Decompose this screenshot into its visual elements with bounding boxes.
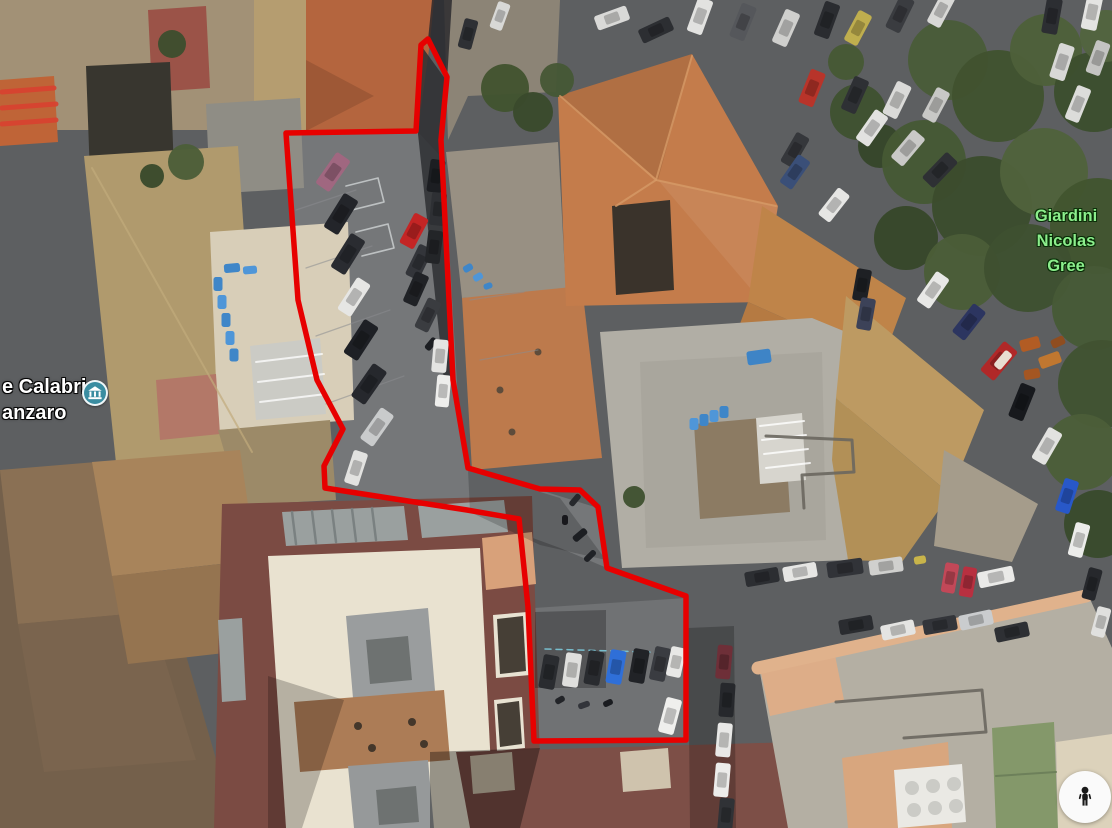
pegman-icon xyxy=(1072,784,1098,810)
satellite-imagery xyxy=(0,0,1112,828)
place-label-line2: anzaro xyxy=(2,402,66,424)
museum-glyph xyxy=(86,384,104,402)
park-label[interactable]: GiardiniNicolas Gree xyxy=(1020,204,1112,279)
buildings-and-streets-layer xyxy=(0,0,1112,828)
pegman-button[interactable] xyxy=(1059,771,1111,823)
map-viewport[interactable]: e Calabriaanzaro GiardiniNicolas Gree xyxy=(0,0,1112,828)
park-label-line2: Nicolas Gree xyxy=(1037,232,1096,275)
museum-landmark-icon[interactable] xyxy=(82,380,108,406)
park-label-line1: Giardini xyxy=(1035,207,1097,225)
